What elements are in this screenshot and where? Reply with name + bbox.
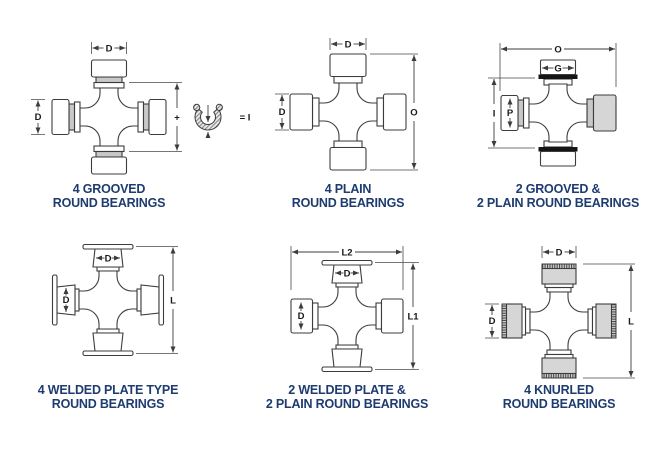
caption-4-knurled: 4 KNURLED ROUND BEARINGS	[469, 384, 649, 411]
caption-4-grooved: 4 GROOVED ROUND BEARINGS	[19, 183, 199, 210]
caption-4-welded-plate: 4 WELDED PLATE TYPE ROUND BEARINGS	[8, 384, 208, 411]
dim-label-left-d: D	[489, 316, 496, 327]
caption-line: 2 WELDED PLATE &	[232, 384, 462, 398]
bearing-types-diagram-sheet: D D + = I D D	[0, 0, 670, 450]
dim-label-top-d: D	[105, 254, 112, 265]
bearing-cap-left	[502, 304, 530, 338]
bearing-cap-right	[376, 299, 403, 333]
diagram-2-welded-2-plain: L2 D D L1	[291, 246, 419, 372]
bearing-cap-left	[291, 299, 318, 333]
dim-label-right-l: L	[628, 317, 634, 328]
bearing-cap-top	[92, 60, 127, 88]
caption-line: ROUND BEARINGS	[8, 398, 208, 412]
cross-body	[529, 84, 587, 142]
dim-label-left-d: D	[35, 112, 42, 123]
caption-line: 4 WELDED PLATE TYPE	[8, 384, 208, 398]
bearing-cap-bottom	[330, 141, 366, 170]
dim-label-right-l: L	[170, 296, 176, 307]
caption-line: 2 GROOVED &	[443, 183, 670, 197]
bearing-cap-right	[377, 94, 406, 130]
bearing-cap-bottom	[322, 345, 372, 372]
bearing-cap-right	[137, 275, 164, 325]
plus-symbol: +	[174, 113, 180, 124]
diagram-4-welded-plate: D D L	[53, 245, 179, 356]
cross-body	[530, 292, 588, 350]
dim-label-right-l1: L1	[407, 312, 419, 323]
caption-4-plain: 4 PLAIN ROUND BEARINGS	[258, 183, 438, 210]
bearing-cap-right	[138, 100, 166, 135]
dim-label-top-d: D	[344, 269, 351, 280]
bearing-cap-bottom	[83, 329, 133, 356]
dim-label-overall-o: O	[554, 45, 561, 56]
caption-line: 4 GROOVED	[19, 183, 199, 197]
caption-line: 4 KNURLED	[469, 384, 649, 398]
dim-label-left-i: I	[493, 109, 496, 120]
dim-label-top-d: D	[556, 248, 563, 259]
cross-body	[79, 271, 137, 329]
cross-body	[318, 287, 376, 345]
dim-label-left-d: D	[298, 311, 305, 322]
dim-label-cap-g: G	[554, 64, 561, 75]
snap-ring-icon	[194, 104, 223, 137]
bearing-cap-left	[501, 96, 529, 131]
dim-label-left-d: D	[279, 107, 286, 118]
dim-label-overall-l2: L2	[341, 248, 352, 259]
bearing-cap-bottom	[542, 350, 576, 378]
bearing-cap-bottom	[92, 146, 127, 174]
bearing-cap-left	[290, 94, 319, 130]
diagram-2-grooved-2-plain: O G I P	[488, 43, 616, 166]
caption-2-grooved-2-plain: 2 GROOVED & 2 PLAIN ROUND BEARINGS	[443, 183, 670, 210]
diagram-4-knurled: D D L	[485, 246, 635, 378]
caption-line: ROUND BEARINGS	[19, 197, 199, 211]
dim-label-top-d: D	[345, 40, 352, 51]
diagram-4-grooved: D D + = I	[31, 42, 250, 174]
caption-line: 4 PLAIN	[258, 183, 438, 197]
dim-label-right-o: O	[410, 108, 417, 119]
bearing-cap-left	[52, 100, 80, 135]
caption-line: 2 PLAIN ROUND BEARINGS	[443, 197, 670, 211]
dim-label-inner-p: P	[507, 108, 514, 119]
bearing-cap-right	[588, 304, 616, 338]
caption-line: ROUND BEARINGS	[469, 398, 649, 412]
bearing-cap-top	[542, 264, 576, 292]
bearing-cap-bottom	[539, 141, 578, 166]
snap-ring-equation-label: = I	[240, 113, 251, 124]
cross-body	[319, 83, 377, 141]
caption-line: ROUND BEARINGS	[258, 197, 438, 211]
cross-body	[80, 88, 138, 146]
bearing-cap-top	[330, 54, 366, 83]
diagram-4-plain: D D O	[275, 38, 418, 170]
bearing-cap-right	[587, 95, 616, 131]
dim-label-top-d: D	[106, 44, 113, 55]
caption-line: 2 PLAIN ROUND BEARINGS	[232, 398, 462, 412]
dim-label-left-d: D	[63, 295, 70, 306]
caption-2-welded-2-plain: 2 WELDED PLATE & 2 PLAIN ROUND BEARINGS	[232, 384, 462, 411]
